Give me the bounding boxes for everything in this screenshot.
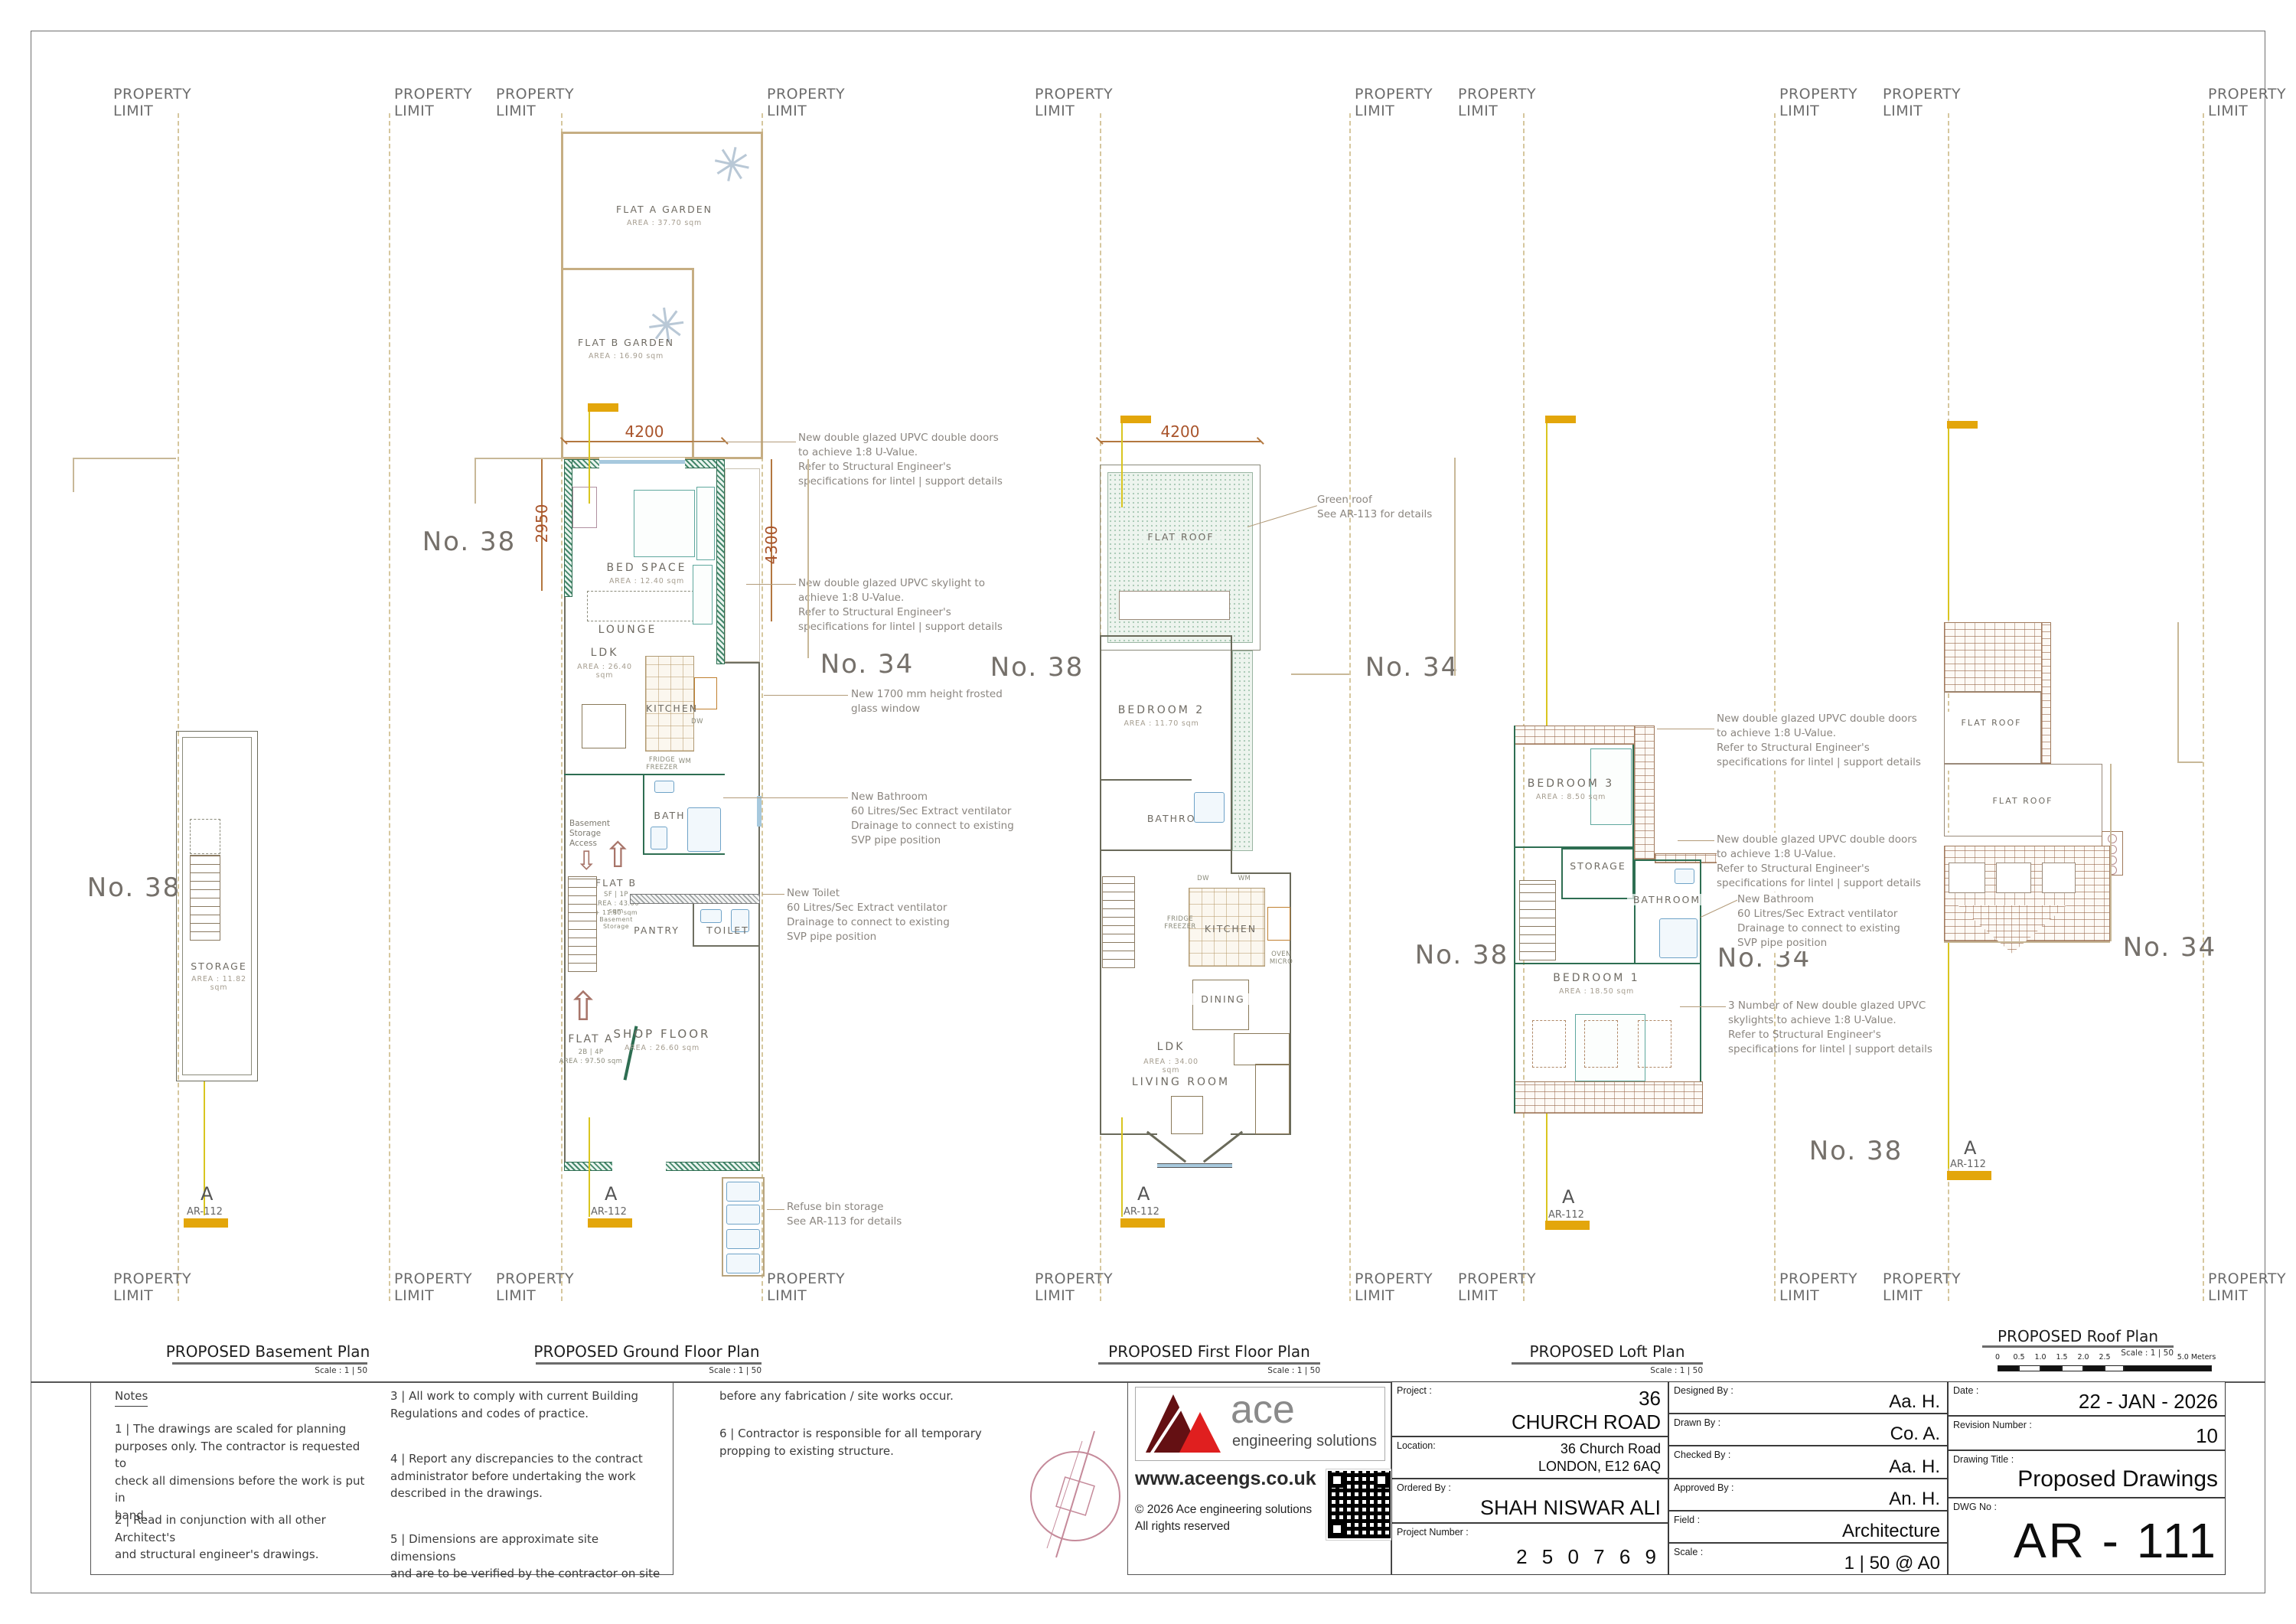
flat-b-entrance-arrow-icon: ⇧ <box>603 837 633 872</box>
basement-storage-area: AREA : 11.82 sqm <box>182 975 256 992</box>
property-limit-label: PROPERTY LIMIT <box>2208 1270 2269 1305</box>
ground-plan-scale: Scale : 1 | 50 <box>647 1366 762 1375</box>
property-limit-label: PROPERTY LIMIT <box>1779 1270 1841 1305</box>
loft-bathroom-label: BATHROOM <box>1627 894 1707 905</box>
ordered-by-value: SHAH NISWAR ALI <box>1480 1496 1661 1520</box>
leader-line <box>1680 1006 1726 1007</box>
loft-section-line-bottom <box>1546 1114 1548 1221</box>
roof-tiles-right-band <box>2041 622 2051 764</box>
bath-label: BATH <box>643 810 696 821</box>
logo-triangle-red <box>1179 1412 1221 1453</box>
drawing-sheet: PROPERTY LIMIT PROPERTY LIMIT PROPERTY L… <box>0 0 2296 1624</box>
qr-finder <box>1329 1472 1345 1488</box>
loft-section-line <box>1546 423 1548 726</box>
qr-code <box>1326 1469 1392 1540</box>
toilet-sink <box>700 909 722 923</box>
field-value: Architecture <box>1842 1521 1940 1542</box>
ground-section-letter: A <box>605 1183 618 1205</box>
qr-finder <box>1374 1472 1389 1488</box>
roof-section-marker <box>1947 1171 1991 1180</box>
ground-section-marker <box>588 1218 632 1228</box>
field-label: Field : <box>1674 1515 1700 1525</box>
property-limit-line <box>178 113 179 1301</box>
title-underline <box>536 1362 762 1365</box>
drawing-title-value: Proposed Drawings <box>2017 1466 2218 1492</box>
first-oven-label: OVEN MICRO <box>1264 951 1298 966</box>
cell-designed-by: Designed By : Aa. H. <box>1668 1381 1948 1414</box>
loft-roof-band-right <box>1634 726 1655 859</box>
loft-skylight <box>1584 1020 1618 1068</box>
ground-left-wall-lower <box>564 597 566 1171</box>
scalebar-tick: 0 <box>1986 1353 2009 1361</box>
property-limit-label: PROPERTY LIMIT <box>1458 86 1519 120</box>
toilet-wall <box>693 904 694 945</box>
loft-storage-outline <box>1561 848 1634 899</box>
designed-by-label: Designed By : <box>1674 1385 1733 1396</box>
property-limit-label: PROPERTY LIMIT <box>1883 86 1944 120</box>
property-limit-label: PROPERTY LIMIT <box>1883 1270 1944 1305</box>
first-ldk-area: AREA : 34.00 sqm <box>1134 1058 1208 1075</box>
date-label: Date : <box>1953 1385 1978 1396</box>
dining-label: DINING <box>1192 993 1254 1005</box>
annotation-upvc-skylight: New double glazed UPVC skylight to achie… <box>798 576 1051 635</box>
property-limit-label: PROPERTY LIMIT <box>767 86 828 120</box>
loft-bedroom3-wall <box>1632 745 1634 848</box>
cell-checked-by: Checked By : Aa. H. <box>1668 1446 1948 1479</box>
neighbor-outline <box>1454 458 1456 676</box>
annotation-upvc-doors: New double glazed UPVC double doors to a… <box>798 431 1051 490</box>
bed-space-bed <box>634 490 695 557</box>
roof-no34-label: No. 34 <box>2120 932 2219 963</box>
refuse-bin <box>726 1182 760 1202</box>
leader-line <box>767 1209 784 1210</box>
ground-dim-left: 2950 <box>533 493 551 554</box>
shop-floor-area: AREA : 26.60 sqm <box>612 1044 712 1052</box>
property-limit-label: PROPERTY LIMIT <box>394 86 455 120</box>
first-stairs <box>1102 876 1135 968</box>
property-limit-label: PROPERTY LIMIT <box>496 1270 557 1305</box>
property-limit-line <box>2203 113 2204 1301</box>
cell-project: Project : 36 CHURCH ROAD <box>1391 1381 1668 1436</box>
property-limit-line <box>1774 113 1776 1301</box>
property-limit-label: PROPERTY LIMIT <box>1458 1270 1519 1305</box>
property-limit-label: PROPERTY LIMIT <box>1035 1270 1096 1305</box>
first-kitchen-label: KITCHEN <box>1196 923 1265 934</box>
property-limit-label: PROPERTY LIMIT <box>113 1270 174 1305</box>
shop-floor-label: SHOP FLOOR <box>612 1027 712 1041</box>
loft-no38-label: No. 38 <box>1412 940 1512 970</box>
bay-window-glazing <box>1157 1163 1232 1168</box>
scalebar-tick: 0.5 <box>2007 1353 2030 1361</box>
loft-plan-scale: Scale : 1 | 50 <box>1588 1366 1703 1375</box>
wardrobe <box>572 487 597 528</box>
first-green-roof-strip <box>1232 651 1253 851</box>
ground-right-wall <box>716 459 725 664</box>
loft-roof-band-bottom <box>1514 1081 1703 1114</box>
ground-glazed-doors <box>599 460 685 464</box>
location-label: Location: <box>1397 1440 1436 1451</box>
basement-section-marker <box>184 1218 228 1228</box>
project-label: Project : <box>1397 1385 1432 1396</box>
annotation-green-roof: Green roof See AR-113 for details <box>1317 493 1486 522</box>
date-value: 22 - JAN - 2026 <box>2079 1390 2218 1414</box>
scalebar-segment <box>2083 1365 2105 1371</box>
bedroom2-label: BEDROOM 2 <box>1114 704 1209 716</box>
roof-tiles-top <box>1944 622 2051 693</box>
logo-tagline: engineering solutions <box>1232 1433 1377 1450</box>
living-room-label: LIVING ROOM <box>1131 1076 1231 1088</box>
north-symbol-icon <box>1018 1427 1133 1561</box>
leader-line <box>764 695 848 696</box>
property-limit-label: PROPERTY LIMIT <box>1355 86 1416 120</box>
first-plan-scale: Scale : 1 | 50 <box>1205 1366 1320 1375</box>
logo-copyright: © 2026 Ace engineering solutions All rig… <box>1135 1502 1312 1534</box>
first-kitchen-top-wall <box>1231 872 1291 874</box>
title-underline <box>1512 1362 1703 1365</box>
cell-dwg-no: DWG No : AR - 111 <box>1948 1498 2226 1575</box>
annotation-skylights-loft: 3 Number of New double glazed UPVC skyli… <box>1728 999 1981 1058</box>
cell-project-number: Project Number : 2 5 0 7 6 9 <box>1391 1523 1668 1575</box>
drawing-title-label: Drawing Title : <box>1953 1454 2014 1465</box>
basement-storage-label: STORAGE <box>182 960 256 972</box>
checked-by-value: Aa. H. <box>1889 1456 1940 1478</box>
property-limit-line <box>389 113 390 1301</box>
refuse-bin <box>726 1205 760 1225</box>
revision-label: Revision Number : <box>1953 1420 2032 1430</box>
note-2: 2 | Read in conjunction with all other A… <box>115 1511 379 1564</box>
first-section-bar-top <box>1120 416 1151 423</box>
loft-section-letter: A <box>1562 1186 1575 1208</box>
designed-by-value: Aa. H. <box>1889 1391 1940 1413</box>
first-dim-top: 4200 <box>1148 422 1212 441</box>
flat-a-garden-label: FLAT A GARDEN <box>611 204 718 215</box>
checked-by-label: Checked By : <box>1674 1450 1730 1460</box>
loft-shower <box>1659 918 1698 958</box>
dining-table-ground <box>582 704 626 748</box>
property-limit-label: PROPERTY LIMIT <box>496 86 557 120</box>
leader-line <box>762 894 784 895</box>
first-section-line-bottom <box>1121 1117 1123 1217</box>
roof-skylight <box>1949 863 1985 893</box>
basement-section-ref: AR-112 <box>187 1206 223 1218</box>
neighbor-outline <box>475 458 476 504</box>
annotation-new-toilet: New Toilet 60 Litres/Sec Extract ventila… <box>787 886 986 945</box>
neighbor-outline <box>2177 761 2203 763</box>
annotation-new-bathroom-loft: New Bathroom 60 Litres/Sec Extract venti… <box>1737 892 1936 951</box>
flat-b-garden-area: AREA : 16.90 sqm <box>572 352 680 360</box>
first-section-ref: AR-112 <box>1124 1206 1159 1218</box>
first-section-line <box>1121 423 1123 507</box>
qr-finder <box>1329 1521 1345 1537</box>
first-bath-shower <box>1194 792 1225 823</box>
drawn-by-value: Co. A. <box>1890 1423 1940 1445</box>
ground-right-wall-lower <box>758 662 760 1171</box>
scale-value: 1 | 50 @ A0 <box>1844 1553 1940 1574</box>
pantry-label: PANTRY <box>626 925 687 936</box>
approved-by-label: Approved By : <box>1674 1482 1734 1493</box>
first-flatroof-label: FLAT ROOF <box>1139 531 1223 543</box>
refuse-bin <box>726 1229 760 1249</box>
ground-shopfront-door <box>612 1160 666 1172</box>
cell-scale: Scale : 1 | 50 @ A0 <box>1668 1543 1948 1575</box>
dim-line <box>1100 441 1261 442</box>
ground-section-line <box>589 412 590 504</box>
property-limit-label: PROPERTY LIMIT <box>1355 1270 1416 1305</box>
frosted-window <box>757 796 762 827</box>
ground-dw-label: DW <box>687 718 707 726</box>
neighbor-outline <box>73 458 74 492</box>
loft-storage-label: STORAGE <box>1563 860 1633 872</box>
scalebar-tick: 2.0 <box>2072 1353 2095 1361</box>
roof-section-line <box>1948 429 1949 620</box>
note-1: 1 | The drawings are scaled for planning… <box>115 1420 371 1524</box>
loft-bedroom1-top-wall <box>1514 963 1634 964</box>
roof-flat2-label: FLAT ROOF <box>1977 796 2069 806</box>
scalebar-tick: 2.5 <box>2093 1353 2116 1361</box>
basement-no38-label: No. 38 <box>84 872 184 903</box>
revision-value: 10 <box>2196 1424 2218 1448</box>
ground-lightwell <box>725 468 760 662</box>
bedroom1-label: BEDROOM 1 <box>1552 972 1641 984</box>
loft-section-marker <box>1545 1221 1590 1230</box>
note-5: 5 | Dimensions are approximate site dime… <box>390 1531 666 1583</box>
loft-section-ref: AR-112 <box>1548 1209 1584 1221</box>
scalebar-segment <box>2105 1365 2124 1371</box>
dwg-no-label: DWG No : <box>1953 1502 1997 1512</box>
loft-wc <box>1675 869 1694 884</box>
ground-section-line-bottom <box>589 1117 590 1217</box>
approved-by-value: An. H. <box>1889 1489 1940 1510</box>
leader-line <box>693 442 796 442</box>
ground-no34-label: No. 34 <box>817 649 917 680</box>
scalebar-tick: 1.0 <box>2029 1353 2052 1361</box>
dwg-no-value: AR - 111 <box>2014 1512 2218 1569</box>
ground-stairs <box>568 876 597 972</box>
basement-access-arrow-icon: ⇩ <box>576 848 598 874</box>
project-value: 36 CHURCH ROAD <box>1512 1387 1661 1433</box>
property-limit-line <box>1523 113 1525 1301</box>
first-no34-label: No. 34 <box>1362 652 1462 683</box>
roof-section-line-bottom <box>1948 943 1949 1169</box>
scalebar-segment <box>2124 1365 2212 1371</box>
roof-right-outline <box>2110 764 2112 941</box>
basement-stairs-dashed <box>190 819 220 854</box>
note-3: 3 | All work to comply with current Buil… <box>390 1388 654 1422</box>
sofa-l-shape-top <box>1234 1033 1290 1065</box>
toilet-wall-bottom <box>693 945 760 947</box>
note-4: 4 | Report any discrepancies to the cont… <box>390 1450 654 1502</box>
loft-section-bar-top <box>1545 416 1576 423</box>
first-ldk-label: LDK <box>1144 1041 1198 1053</box>
party-wall-hatched <box>630 894 760 904</box>
neighbor-outline <box>2177 622 2179 761</box>
ground-section-bar-top <box>588 403 618 412</box>
leader-line <box>746 584 796 585</box>
scalebar-segment <box>2019 1365 2040 1371</box>
property-limit-line <box>1349 113 1351 1301</box>
bed-space-label: BED SPACE <box>605 562 689 574</box>
bath-sink <box>654 781 674 793</box>
cell-date: Date : 22 - JAN - 2026 <box>1948 1381 2226 1416</box>
first-skylight <box>1119 591 1230 620</box>
cell-ordered-by: Ordered By : SHAH NISWAR ALI <box>1391 1479 1668 1523</box>
bed-space-area: AREA : 12.40 sqm <box>605 577 689 585</box>
ground-ldk-label: LDK <box>578 647 631 659</box>
notes-heading: Notes <box>115 1388 148 1407</box>
stove-first <box>1267 907 1290 941</box>
basement-plan-title: PROPOSED Basement Plan <box>153 1342 383 1361</box>
first-plan-title: PROPOSED First Floor Plan <box>1094 1342 1324 1361</box>
first-fridge-label: FRIDGE FREEZER <box>1162 915 1199 931</box>
project-number-label: Project Number : <box>1397 1527 1469 1538</box>
property-limit-label: PROPERTY LIMIT <box>1779 86 1841 120</box>
first-bathroom-wall <box>1100 850 1232 851</box>
ground-ldk-area: AREA : 26.40 sqm <box>568 663 641 680</box>
cell-drawing-title: Drawing Title : Proposed Drawings <box>1948 1450 2226 1498</box>
bedroom1-area: AREA : 18.50 sqm <box>1552 987 1641 996</box>
ground-left-wall <box>564 459 572 597</box>
flat-b-garden-label: FLAT B GARDEN <box>572 337 680 348</box>
cell-field: Field : Architecture <box>1668 1511 1948 1543</box>
property-limit-label: PROPERTY LIMIT <box>113 86 174 120</box>
first-section-marker <box>1120 1218 1165 1228</box>
roof-section-letter: A <box>1964 1137 1977 1159</box>
property-limit-label: PROPERTY LIMIT <box>394 1270 455 1305</box>
first-right-wall-upper <box>1231 635 1232 874</box>
ground-kitchen-label: KITCHEN <box>641 703 703 714</box>
lounge-label: LOUNGE <box>593 624 662 636</box>
logo-url[interactable]: www.aceengs.co.uk <box>1135 1468 1316 1490</box>
logo-brand: ace <box>1231 1387 1295 1433</box>
armchair <box>1171 1096 1203 1134</box>
basement-stairs <box>190 855 220 941</box>
first-wm-label: WM <box>1234 875 1255 882</box>
dining-table-first <box>1192 980 1249 1030</box>
neighbor-outline <box>807 459 809 658</box>
ground-dim-top: 4200 <box>612 422 677 441</box>
bedroom3-area: AREA : 8.50 sqm <box>1527 793 1615 801</box>
toilet-label: TOILET <box>698 925 758 936</box>
roof-bottom-outline <box>1944 941 2110 943</box>
scale-label: Scale : <box>1674 1547 1703 1557</box>
ground-section-ref: AR-112 <box>591 1206 627 1218</box>
annotation-upvc-doors-loft1: New double glazed UPVC double doors to a… <box>1717 712 1969 771</box>
refuse-bin-store <box>722 1177 765 1277</box>
lounge-rug <box>587 591 698 621</box>
loft-right-wall <box>1700 859 1701 1081</box>
title-underline <box>1098 1362 1320 1365</box>
scalebar-segment <box>2040 1365 2062 1371</box>
bedroom3-label: BEDROOM 3 <box>1527 778 1615 790</box>
loft-stairs <box>1519 880 1556 960</box>
ground-no38-label: No. 38 <box>419 527 519 557</box>
ground-step-wall <box>725 662 760 664</box>
annotation-frosted-window: New 1700 mm height frosted glass window <box>851 687 1042 716</box>
cell-revision: Revision Number : 10 <box>1948 1416 2226 1450</box>
ground-dim-right: 4300 <box>762 514 781 576</box>
neighbor-outline <box>73 458 176 459</box>
scalebar-segment <box>2062 1365 2083 1371</box>
note-5-continued: before any fabrication / site works occu… <box>719 1388 987 1405</box>
annotation-refuse: Refuse bin storage See AR-113 for detail… <box>787 1200 963 1229</box>
property-limit-label: PROPERTY LIMIT <box>2208 86 2269 120</box>
roof-skylight <box>2042 863 2076 893</box>
cell-location: Location: 36 Church Road LONDON, E12 6AQ <box>1391 1436 1668 1479</box>
bedroom2-area: AREA : 11.70 sqm <box>1114 719 1209 728</box>
loft-plan-title: PROPOSED Loft Plan <box>1492 1342 1722 1361</box>
sofa-l-shape-side <box>1255 1064 1290 1134</box>
ground-plan-title: PROPOSED Ground Floor Plan <box>532 1342 762 1361</box>
title-underline <box>1982 1345 2174 1348</box>
basement-plan-scale: Scale : 1 | 50 <box>291 1366 367 1375</box>
bath-wall-bottom <box>643 853 725 855</box>
location-value: 36 Church Road LONDON, E12 6AQ <box>1538 1440 1661 1476</box>
cell-approved-by: Approved By : An. H. <box>1668 1479 1948 1511</box>
property-limit-label: PROPERTY LIMIT <box>1035 86 1096 120</box>
ordered-by-label: Ordered By : <box>1397 1482 1451 1493</box>
leader-line <box>723 797 848 798</box>
loft-left-wall <box>1514 726 1515 1114</box>
drawn-by-label: Drawn By : <box>1674 1417 1720 1428</box>
lounge-sofa <box>693 565 713 624</box>
scalebar-segment <box>1998 1365 2019 1371</box>
annotation-new-bathroom: New Bathroom 60 Litres/Sec Extract venti… <box>851 790 1050 849</box>
note-6: 6 | Contractor is responsible for all te… <box>719 1425 987 1459</box>
first-bedroom2-wall <box>1100 779 1192 781</box>
roof-section-bar-top <box>1947 421 1978 429</box>
first-left-wall <box>1100 635 1101 1135</box>
flat-a-area: AREA : 97.50 sqm <box>556 1058 626 1065</box>
neighbor-outline <box>475 458 564 459</box>
first-section-letter: A <box>1137 1183 1150 1205</box>
leader-line <box>1678 840 1714 841</box>
project-number-value: 2 5 0 7 6 9 <box>1516 1545 1661 1569</box>
refuse-bin <box>726 1254 760 1273</box>
roof-skylight <box>1996 863 2031 893</box>
leader-line <box>1657 729 1714 729</box>
loft-skylight <box>1532 1020 1566 1068</box>
bath-wc <box>651 827 667 850</box>
roof-no38-label: No. 38 <box>1806 1136 1906 1166</box>
bath-wall <box>564 774 725 775</box>
first-no38-label: No. 38 <box>987 652 1087 683</box>
roof-section-ref: AR-112 <box>1950 1159 1986 1170</box>
vent-circle <box>2108 834 2117 843</box>
roof-plan-title: PROPOSED Roof Plan <box>1963 1327 2193 1345</box>
basement-section-letter: A <box>201 1183 214 1205</box>
cell-drawn-by: Drawn By : Co. A. <box>1668 1414 1948 1446</box>
neighbor-outline <box>1291 673 1349 675</box>
first-top-wall <box>1100 635 1232 637</box>
flat-a-garden-area: AREA : 37.70 sqm <box>611 219 718 227</box>
scalebar-end: 5.0 Meters <box>2170 1353 2223 1361</box>
bed-space-headboard <box>696 487 715 560</box>
loft-skylight <box>1638 1020 1671 1068</box>
scalebar-tick: 1.5 <box>2050 1353 2073 1361</box>
first-dw-label: DW <box>1192 875 1214 882</box>
roof-flat1-label: FLAT ROOF <box>1949 718 2034 728</box>
property-limit-label: PROPERTY LIMIT <box>767 1270 828 1305</box>
annotation-upvc-doors-loft2: New double glazed UPVC double doors to a… <box>1717 833 1969 892</box>
flat-a-entrance-arrow-icon: ⇧ <box>566 987 600 1027</box>
title-underline <box>172 1362 367 1365</box>
loft-roof-band-top <box>1514 726 1645 745</box>
ground-wm-label: WM <box>673 758 696 765</box>
